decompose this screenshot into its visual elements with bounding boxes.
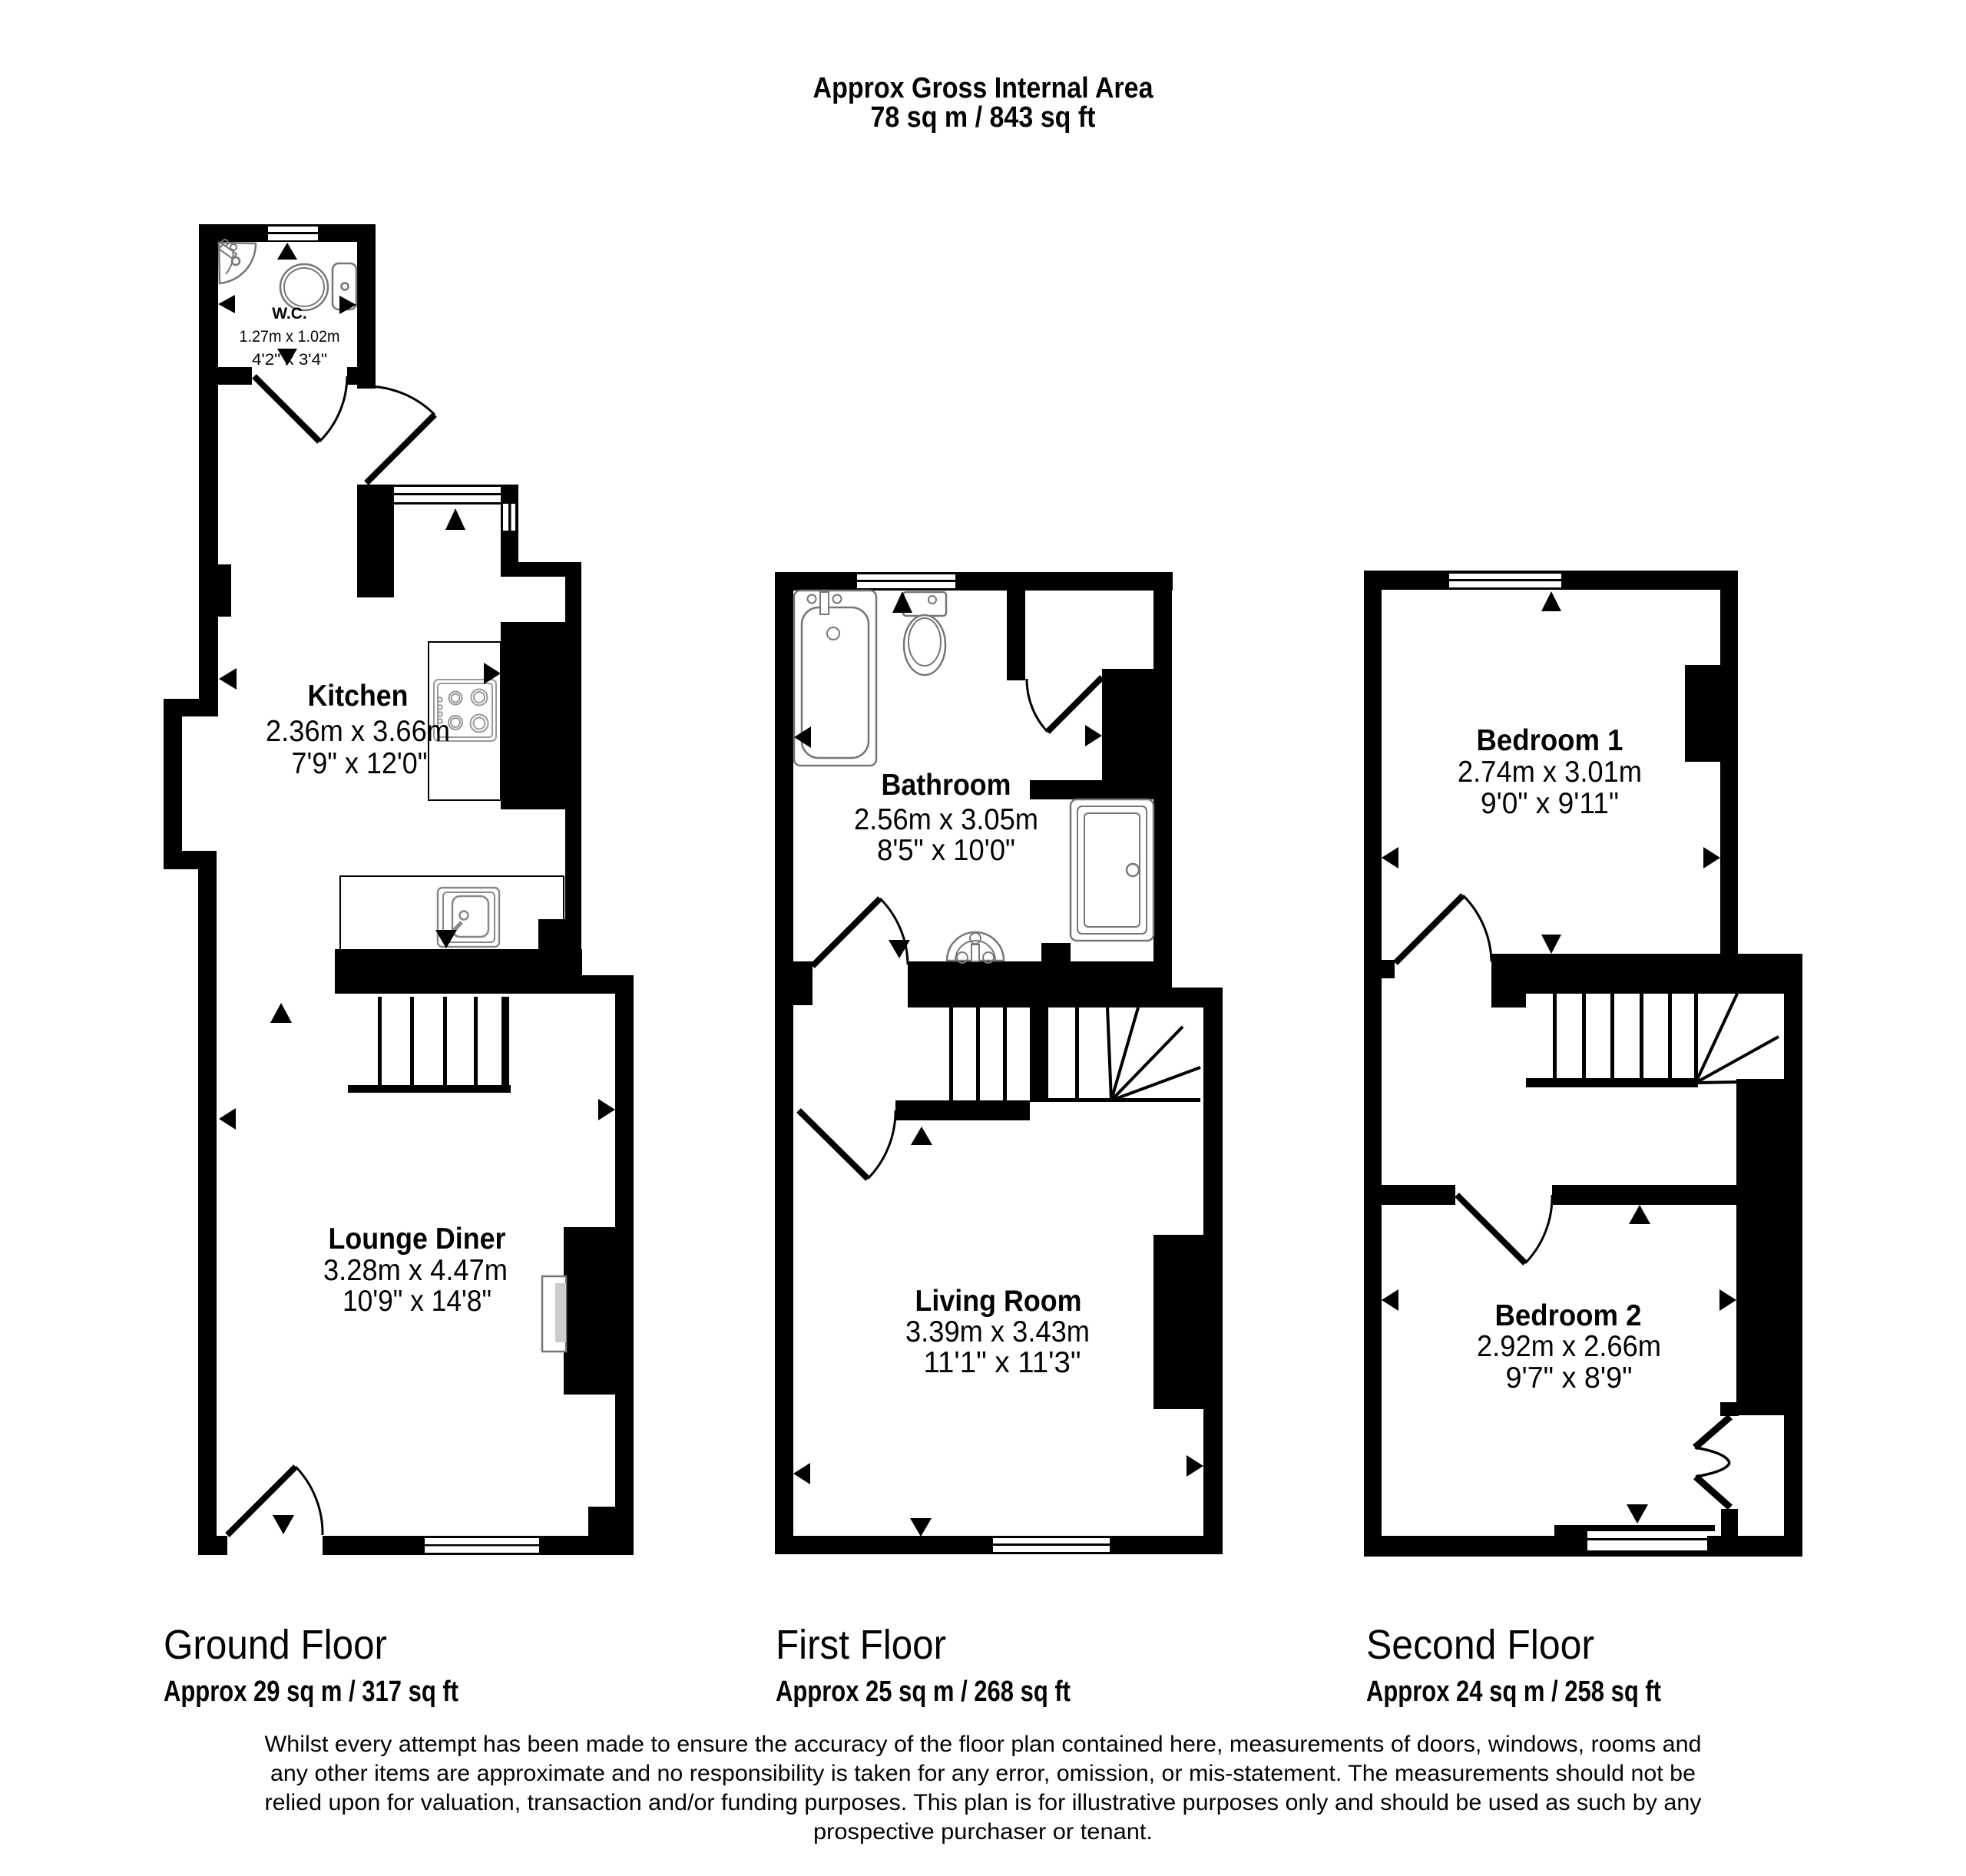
svg-text:Approx 24 sq m / 258 sq ft: Approx 24 sq m / 258 sq ft: [1366, 1676, 1661, 1708]
svg-text:Approx 25 sq m / 268 sq ft: Approx 25 sq m / 268 sq ft: [776, 1676, 1071, 1708]
svg-text:Living Room: Living Room: [915, 1285, 1082, 1318]
svg-text:First Floor: First Floor: [776, 1622, 946, 1668]
svg-text:W.C.: W.C.: [272, 305, 307, 323]
svg-text:1.27m x 1.02m: 1.27m x 1.02m: [240, 328, 340, 346]
svg-text:2.56m x 3.05m: 2.56m x 3.05m: [854, 803, 1038, 836]
svg-text:2.92m x 2.66m: 2.92m x 2.66m: [1477, 1330, 1661, 1363]
svg-text:Whilst every attempt has been: Whilst every attempt has been made to en…: [265, 1732, 1702, 1757]
svg-text:7'9" x 12'0": 7'9" x 12'0": [292, 747, 428, 780]
svg-text:Lounge Diner: Lounge Diner: [329, 1223, 506, 1256]
svg-text:Approx 29 sq m / 317 sq ft: Approx 29 sq m / 317 sq ft: [164, 1676, 458, 1708]
svg-text:any other items are approximat: any other items are approximate and no r…: [270, 1761, 1696, 1786]
svg-text:Second Floor: Second Floor: [1366, 1622, 1594, 1668]
svg-text:4'2" x 3'4": 4'2" x 3'4": [252, 351, 327, 369]
svg-text:2.36m x 3.66m: 2.36m x 3.66m: [266, 715, 450, 748]
svg-text:9'0" x 9'11": 9'0" x 9'11": [1481, 787, 1619, 820]
svg-text:8'5" x 10'0": 8'5" x 10'0": [877, 834, 1015, 867]
svg-text:Bedroom 2: Bedroom 2: [1495, 1299, 1642, 1332]
svg-text:Bedroom 1: Bedroom 1: [1477, 724, 1623, 757]
svg-text:3.39m x 3.43m: 3.39m x 3.43m: [905, 1315, 1090, 1348]
svg-text:relied upon for valuation, tra: relied upon for valuation, transaction a…: [265, 1790, 1702, 1815]
svg-text:2.74m x 3.01m: 2.74m x 3.01m: [1458, 756, 1642, 789]
svg-text:Kitchen: Kitchen: [308, 680, 409, 713]
svg-text:Ground Floor: Ground Floor: [164, 1622, 387, 1668]
svg-text:9'7" x 8'9": 9'7" x 8'9": [1506, 1362, 1633, 1395]
svg-text:prospective purchaser or tenan: prospective purchaser or tenant.: [813, 1819, 1153, 1845]
svg-text:78 sq m / 843 sq ft: 78 sq m / 843 sq ft: [871, 101, 1096, 134]
svg-text:Bathroom: Bathroom: [882, 769, 1011, 802]
svg-text:11'1" x 11'3": 11'1" x 11'3": [924, 1346, 1081, 1379]
svg-text:10'9" x 14'8": 10'9" x 14'8": [343, 1285, 491, 1318]
svg-text:3.28m x 4.47m: 3.28m x 4.47m: [323, 1254, 508, 1287]
svg-text:Approx Gross Internal Area: Approx Gross Internal Area: [813, 72, 1154, 104]
